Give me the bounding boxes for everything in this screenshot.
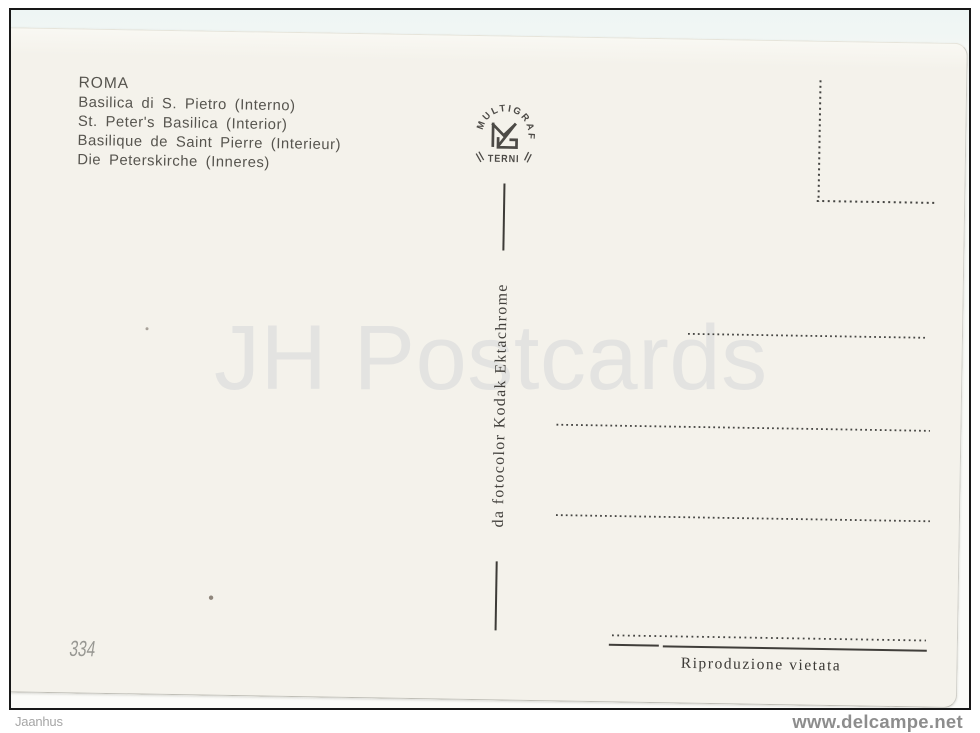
svg-text:St. Peter's Basilica (Interior: St. Peter's Basilica (Interior) bbox=[78, 114, 288, 133]
svg-text:TERNI: TERNI bbox=[488, 154, 520, 166]
svg-text:Die Peterskirche (Inneres): Die Peterskirche (Inneres) bbox=[77, 152, 270, 171]
svg-text:Riproduzione vietata: Riproduzione vietata bbox=[681, 655, 842, 675]
svg-text:ROMA: ROMA bbox=[78, 75, 129, 93]
svg-text:Basilique de Saint Pierre (Int: Basilique de Saint Pierre (Interieur) bbox=[77, 133, 341, 153]
svg-text:Basilica di S. Pietro (Interno: Basilica di S. Pietro (Interno) bbox=[78, 95, 296, 115]
svg-text:334: 334 bbox=[68, 638, 98, 663]
